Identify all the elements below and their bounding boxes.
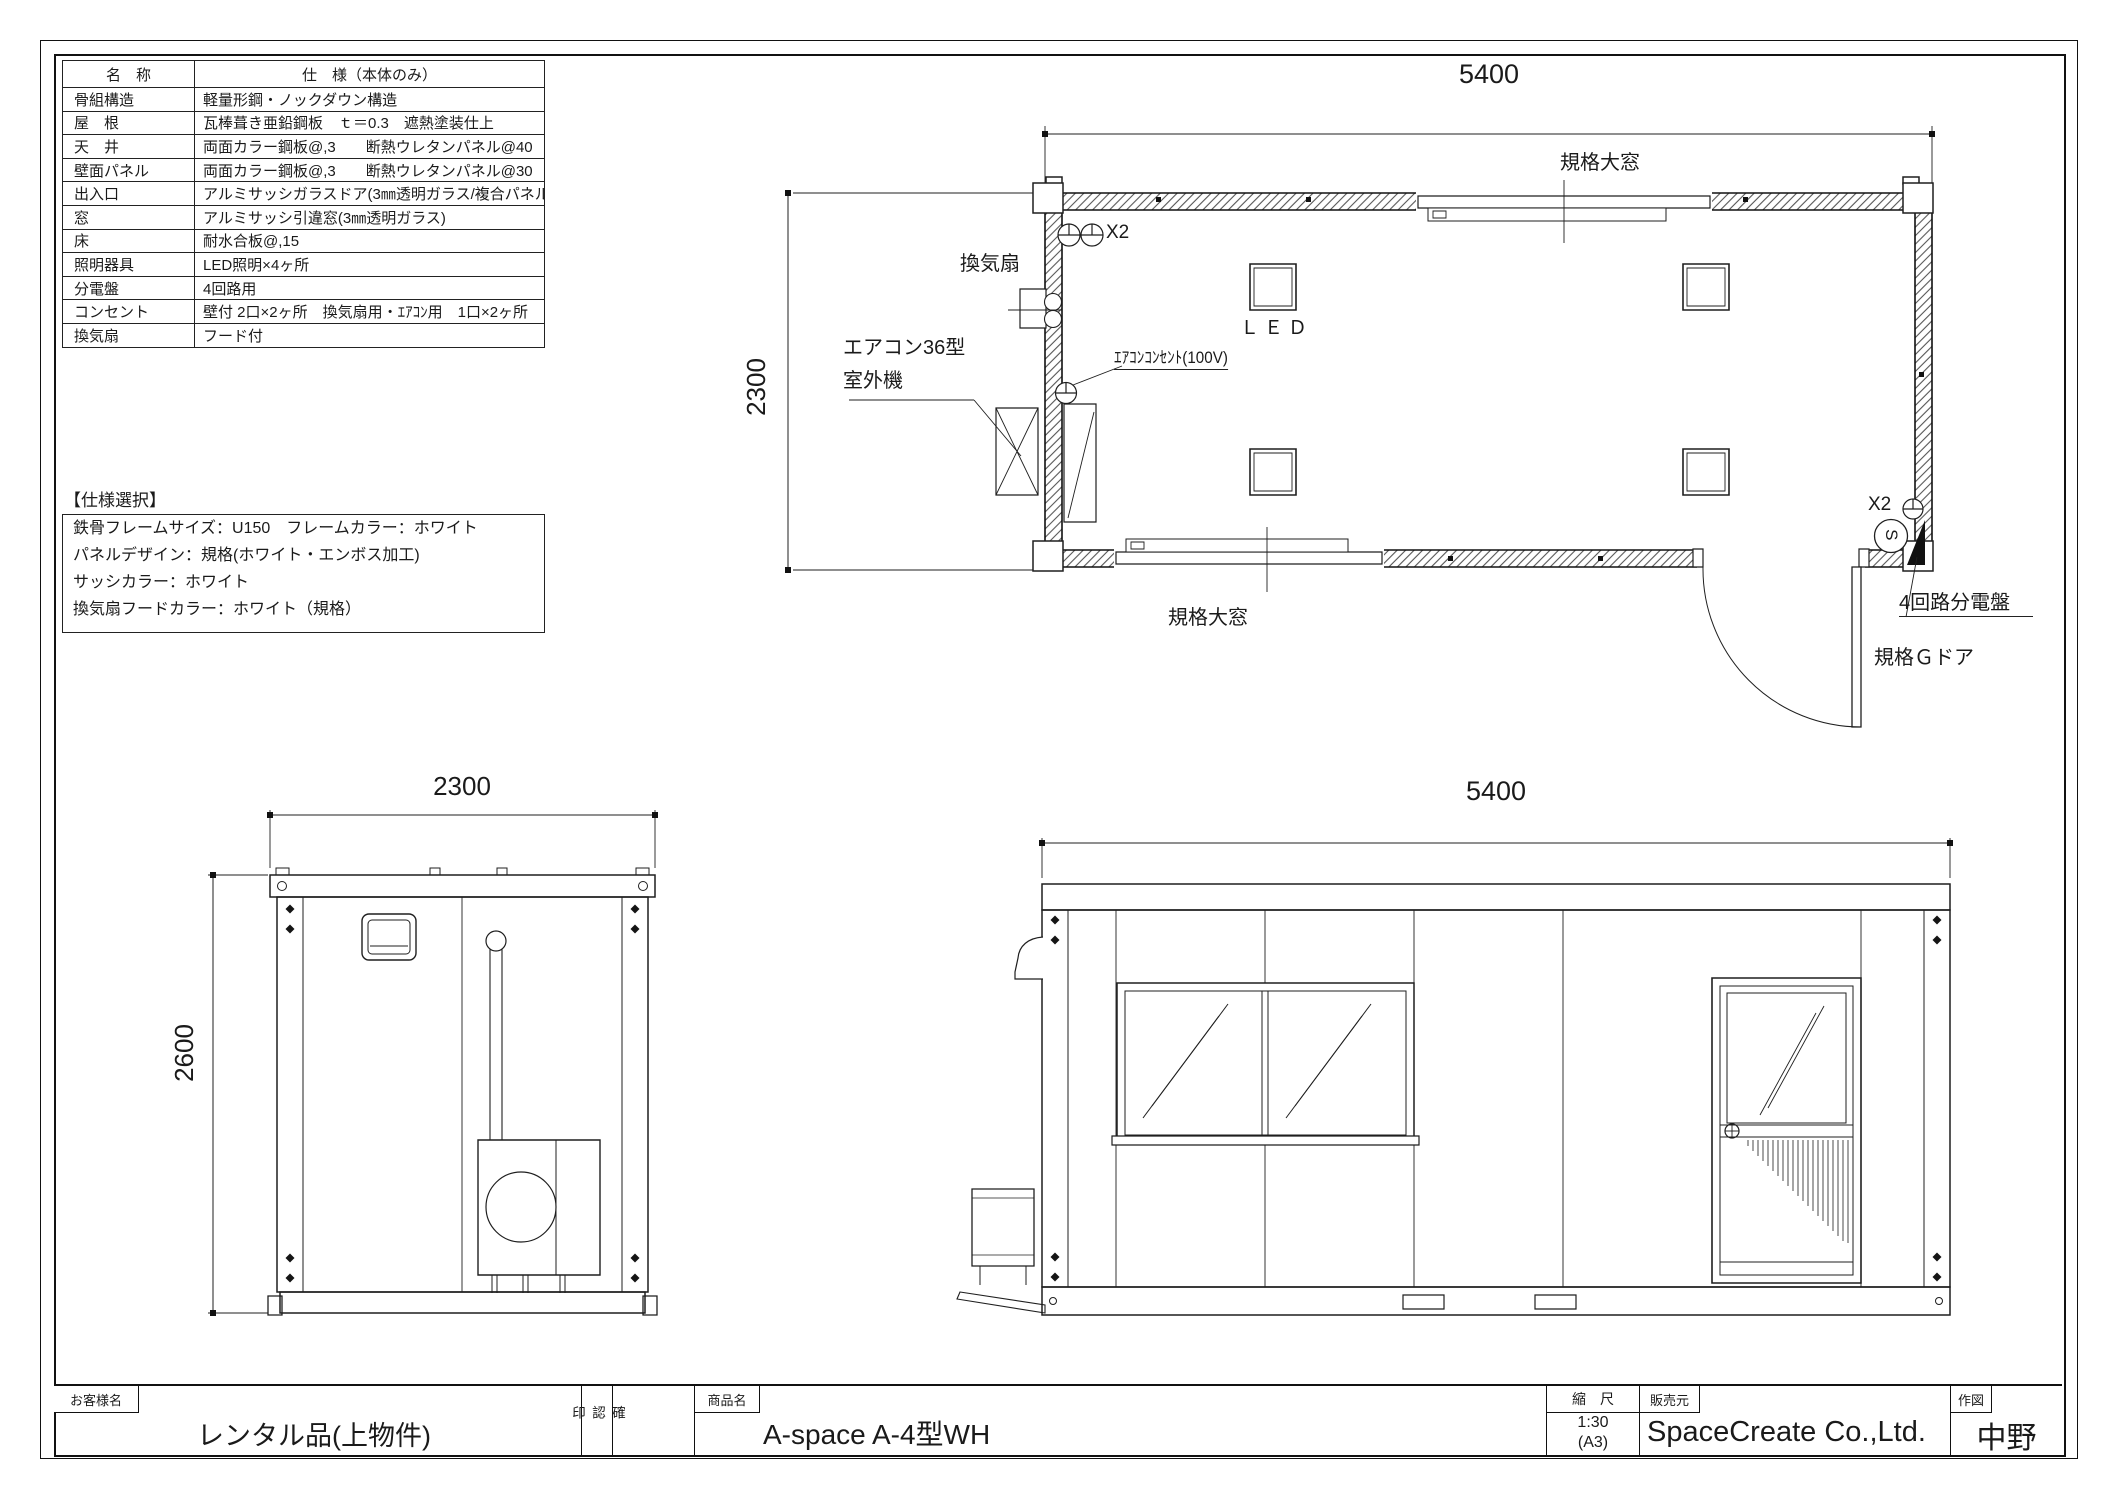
front-dimension-lines	[1039, 838, 1953, 878]
plan-walls	[1045, 193, 1932, 567]
side-dim-height: 2600	[170, 993, 200, 1113]
product-label: 商品名	[695, 1386, 760, 1413]
outlet-symbol	[1058, 224, 1103, 246]
scale-label: 縮 尺	[1547, 1386, 1639, 1413]
floor-plan-drawing	[720, 50, 2116, 750]
front-window	[1112, 983, 1419, 1145]
customer-value: レンタル品(上物件)	[94, 1414, 534, 1453]
ac-outlet-label: ｴｱｺﾝｺﾝｾﾝﾄ(100V)	[1114, 349, 1228, 370]
plan-window-top	[1418, 180, 1710, 243]
spec-row: 照明器具LED照明×4ヶ所	[63, 253, 545, 277]
outdoor-unit-label-1: エアコン36型	[843, 337, 965, 360]
led-light-symbol	[1250, 264, 1729, 495]
drawer-value: 中野	[1951, 1413, 2062, 1457]
product-value: A-space A-4型WH	[763, 1413, 990, 1453]
side-elevation-drawing	[150, 760, 710, 1340]
drawer-label: 作図	[1951, 1386, 1992, 1413]
seller-value: SpaceCreate Co.,Ltd.	[1647, 1416, 1926, 1449]
led-label: ＬＥＤ	[1240, 318, 1312, 340]
plan-panel-joints	[1156, 197, 1924, 561]
plan-dim-width: 5400	[1429, 59, 1549, 90]
spec-select-box: 鉄骨フレームサイズ：U150 フレームカラー：ホワイト パネルデザイン：規格(ホ…	[62, 514, 545, 633]
scale-cell: 縮 尺 1:30 (A3)	[1547, 1386, 1640, 1455]
spec-header-row: 名 称 仕 様（本体のみ）	[63, 61, 545, 88]
spec-header-spec: 仕 様（本体のみ）	[195, 61, 545, 88]
drawing-sheet: 名 称 仕 様（本体のみ） 骨組構造軽量形鋼・ノックダウン構造 屋 根瓦棒葺き亜…	[0, 0, 2116, 1497]
plan-dim-depth: 2300	[742, 327, 772, 447]
spec-select-line: 換気扇フードカラー：ホワイト（規格）	[63, 596, 544, 623]
title-block: お客様名 レンタル品(上物件) 確認印 商品名 A-space A-4型WH 縮…	[54, 1384, 2062, 1455]
vent-fan-label: 換気扇	[960, 253, 1020, 276]
side-base	[268, 1292, 657, 1315]
spec-row: 骨組構造軽量形鋼・ノックダウン構造	[63, 88, 545, 112]
spec-select-line: サッシカラー：ホワイト	[63, 569, 544, 596]
front-dim-width: 5400	[1434, 776, 1558, 807]
breaker-label: 4回路分電盤	[1899, 592, 2033, 617]
drawer-cell: 作図 中野	[1951, 1386, 2062, 1455]
spec-row: 窓アルミサッシ引違窓(3㎜透明ガラス)	[63, 205, 545, 229]
switch-letter: S	[1881, 527, 1901, 543]
plan-window-bottom-label: 規格大窓	[1168, 607, 1248, 630]
outdoor-ac-unit-front	[972, 1189, 1034, 1285]
indoor-ac-unit	[1064, 404, 1096, 522]
stamp-cell	[613, 1386, 695, 1455]
spec-select-line: パネルデザイン：規格(ホワイト・エンボス加工)	[63, 542, 544, 569]
spec-table: 名 称 仕 様（本体のみ） 骨組構造軽量形鋼・ノックダウン構造 屋 根瓦棒葺き亜…	[62, 60, 545, 348]
side-dim-width: 2300	[400, 772, 524, 802]
spec-row: 天 井両面カラー鋼板@,3 断熱ウレタンパネル@40	[63, 135, 545, 159]
approval-cell: 確認印	[582, 1386, 613, 1455]
front-elevation-drawing	[940, 760, 1990, 1340]
outlet-x2-bottomright-label: X2	[1868, 494, 1891, 516]
seller-label: 販売元	[1640, 1386, 1700, 1413]
spec-row: 分電盤4回路用	[63, 276, 545, 300]
front-base	[1042, 1287, 1950, 1315]
spec-select-line: 鉄骨フレームサイズ：U150 フレームカラー：ホワイト	[63, 515, 544, 542]
product-cell: 商品名 A-space A-4型WH	[695, 1386, 1547, 1455]
vent-hood-side	[362, 914, 416, 960]
spec-row: 床耐水合板@,15	[63, 229, 545, 253]
outdoor-ac-unit-side	[478, 1140, 600, 1293]
spec-select-title: 【仕様選択】	[64, 486, 166, 511]
customer-cell: お客様名 レンタル品(上物件)	[54, 1386, 582, 1455]
outlet-x2-topleft-label: X2	[1106, 222, 1129, 244]
outlet-symbol	[1903, 499, 1923, 519]
spec-row: 出入口アルミサッシガラスドア(3㎜透明ガラス/複合パネル)	[63, 182, 545, 206]
plan-window-top-label: 規格大窓	[1560, 152, 1640, 175]
plan-entrance-door	[1693, 549, 1869, 727]
refrigerant-pipe	[486, 931, 506, 1140]
spec-row: コンセント壁付 2口×2ヶ所 換気扇用・ｴｱｺﾝ用 1口×2ヶ所	[63, 300, 545, 324]
spec-row: 換気扇フード付	[63, 323, 545, 347]
seller-cell: 販売元 SpaceCreate Co.,Ltd.	[1640, 1386, 1951, 1455]
vent-hood-front	[1015, 937, 1043, 979]
outdoor-ac-unit-plan	[849, 400, 1038, 495]
side-wall	[277, 897, 648, 1292]
front-ramp	[957, 1292, 1045, 1313]
scale-paper: (A3)	[1547, 1434, 1639, 1452]
door-label: 規格Ｇドア	[1874, 647, 1974, 670]
scale-value: 1:30	[1547, 1414, 1639, 1432]
outdoor-unit-label-2: 室外機	[843, 370, 903, 393]
side-dimension-lines	[208, 810, 658, 1316]
spec-header-name: 名 称	[63, 61, 195, 88]
plan-corner-posts	[1033, 177, 1933, 571]
side-roof	[270, 868, 655, 897]
ac-outlet-symbol	[1056, 366, 1123, 404]
front-door	[1712, 978, 1861, 1283]
spec-row: 屋 根瓦棒葺き亜鉛鋼板 ｔ＝0.3 遮熱塗装仕上	[63, 111, 545, 135]
front-roof	[1042, 884, 1950, 910]
spec-row: 壁面パネル両面カラー鋼板@,3 断熱ウレタンパネル@30	[63, 158, 545, 182]
plan-window-bottom	[1116, 527, 1382, 592]
customer-label: お客様名	[54, 1386, 139, 1413]
vent-fan-symbol	[1008, 289, 1062, 328]
